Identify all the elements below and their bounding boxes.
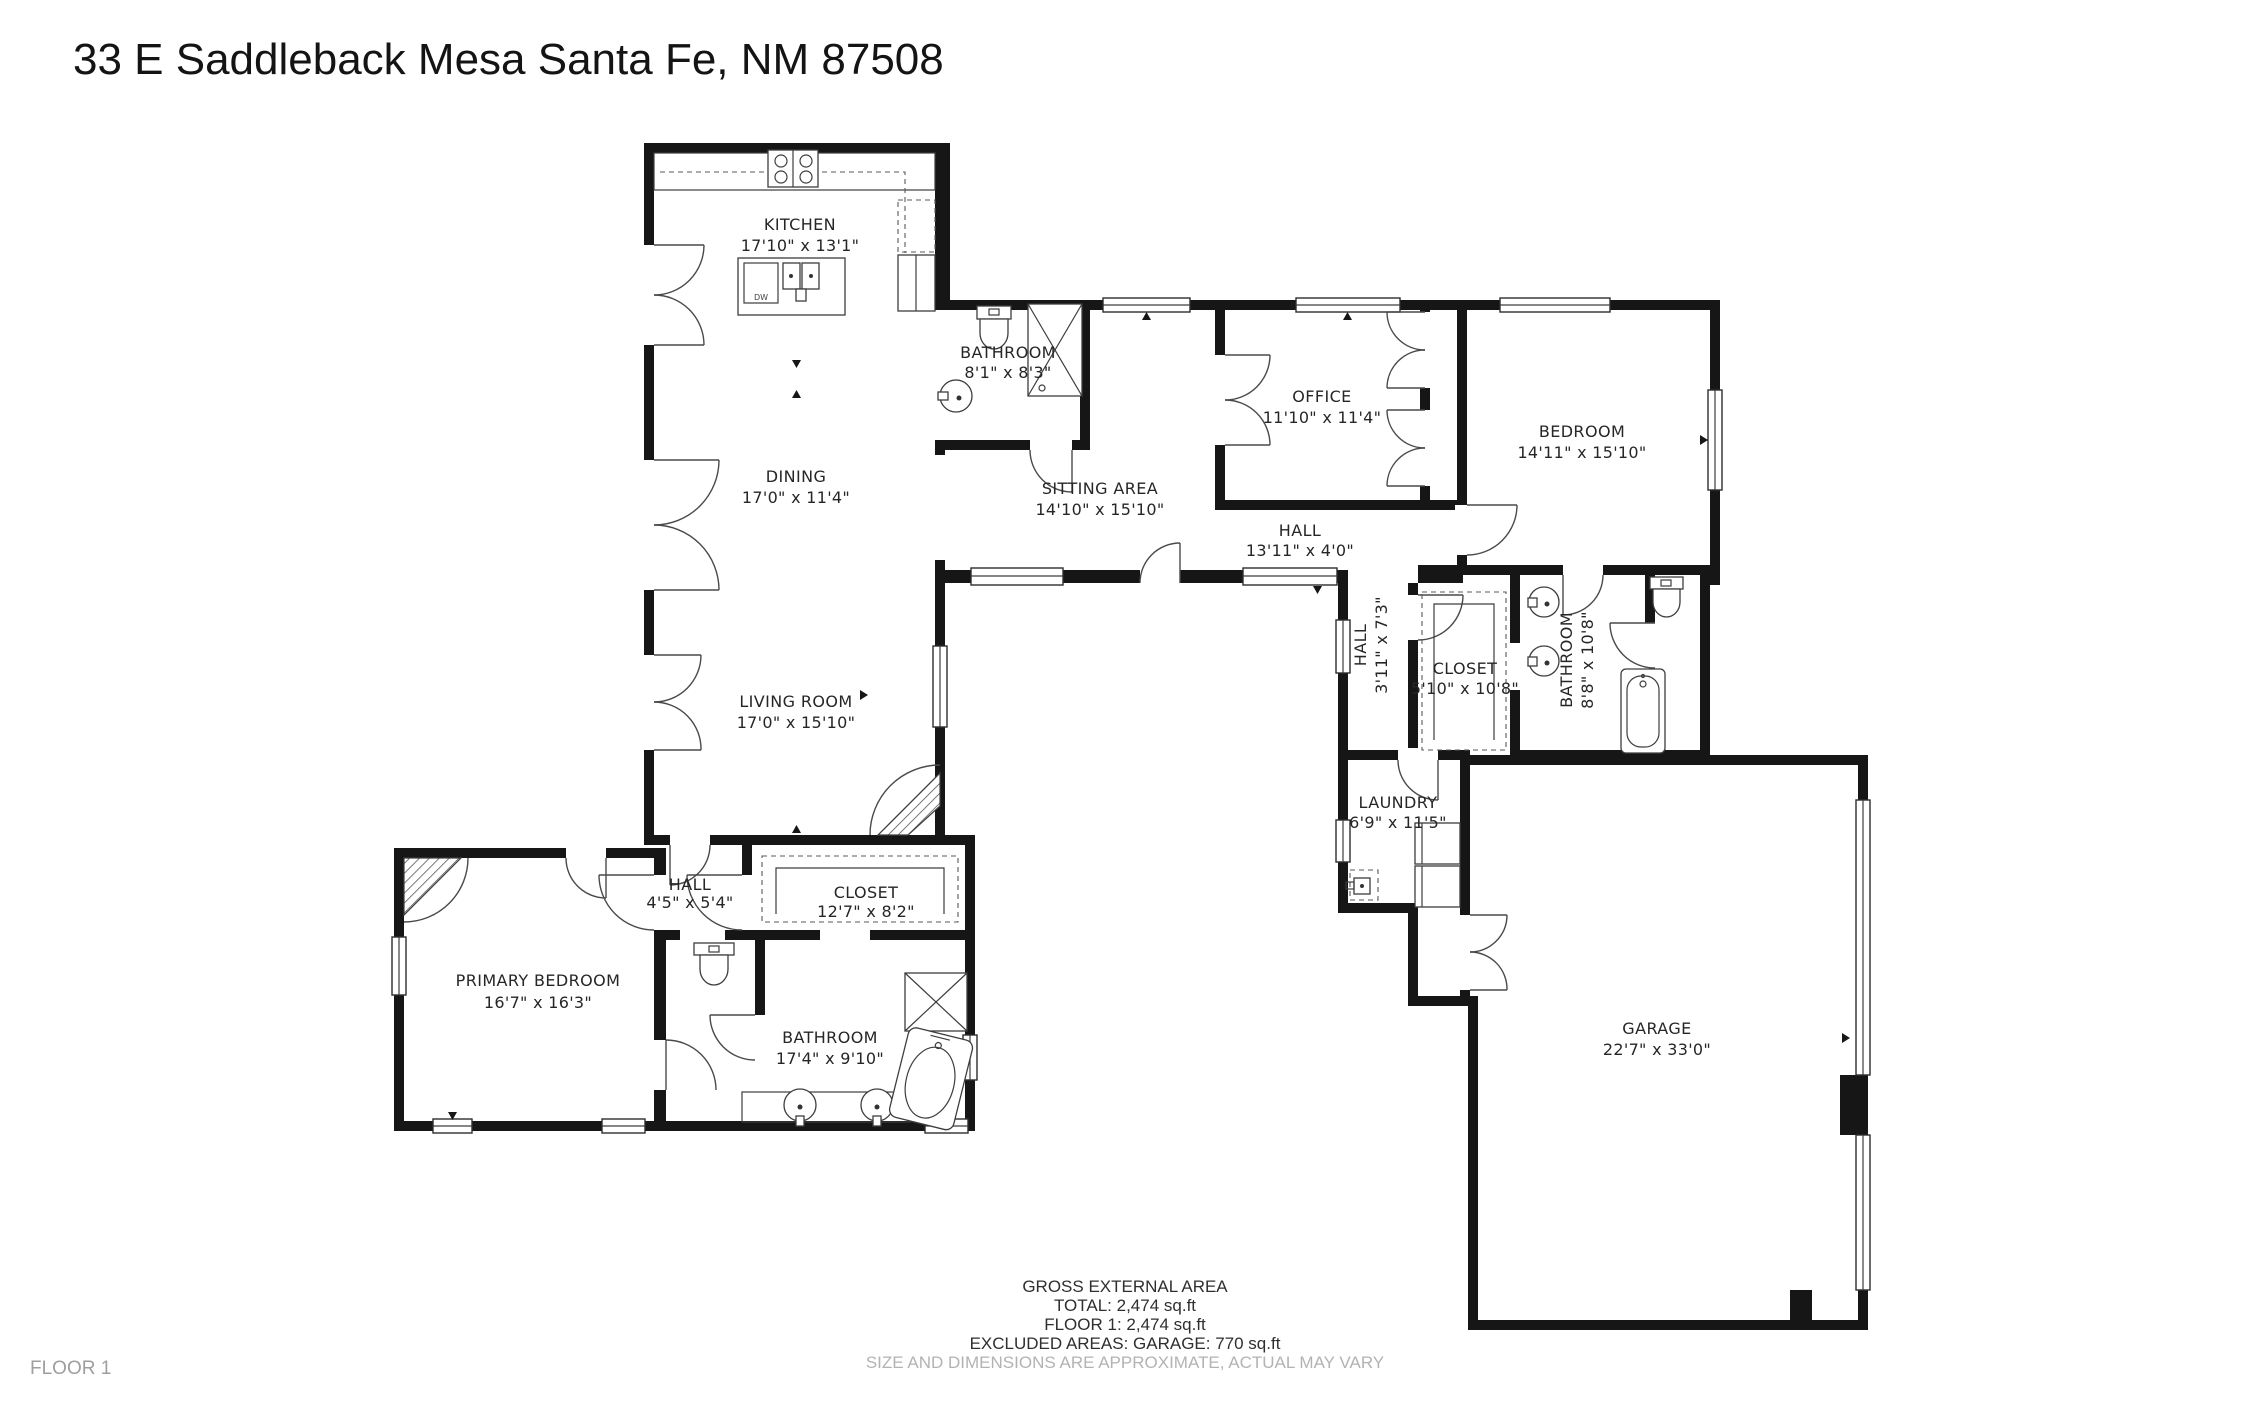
room-dims-bedroom: 14'11" x 15'10" [1517, 443, 1646, 462]
window [1296, 298, 1400, 312]
room-dims-hall-primary: 4'5" x 5'4" [646, 893, 733, 912]
room-dims-sitting-area: 14'10" x 15'10" [1035, 500, 1164, 519]
room-dims-bathroom-primary: 17'4" x 9'10" [776, 1049, 884, 1068]
fireplace-icon [870, 765, 940, 835]
room-label-garage: GARAGE [1622, 1019, 1691, 1038]
summary-disclaimer: SIZE AND DIMENSIONS ARE APPROXIMATE, ACT… [866, 1353, 1384, 1372]
door [1610, 623, 1655, 668]
window [1336, 620, 1350, 673]
door [1140, 543, 1180, 585]
window [1708, 390, 1722, 490]
door [1563, 563, 1603, 615]
room-dims-closet-primary: 12'7" x 8'2" [817, 902, 915, 921]
room-label-closet-primary: CLOSET [834, 883, 899, 902]
window [933, 646, 947, 727]
room-dims-laundry: 6'9" x 11'5" [1349, 813, 1447, 832]
bathtub-icon [1621, 669, 1665, 753]
washer-dryer-icon [1346, 823, 1460, 907]
kitchen-island-icon: DW [738, 258, 845, 315]
floor-label: FLOOR 1 [30, 1358, 111, 1379]
sink-icon [938, 380, 972, 412]
double-door [1458, 915, 1507, 990]
room-label-bathroom-primary: BATHROOM [782, 1028, 878, 1047]
door [652, 1040, 716, 1090]
room-dims-office: 11'10" x 11'4" [1263, 408, 1382, 427]
summary-total: TOTAL: 2,474 sq.ft [1054, 1296, 1196, 1315]
room-label-living-room: LIVING ROOM [739, 692, 852, 711]
cased-opening [933, 455, 947, 560]
room-dims-primary-bedroom: 16'7" x 16'3" [484, 993, 592, 1012]
floorplan-page: DW [0, 0, 2245, 1402]
room-label-primary-bedroom: PRIMARY BEDROOM [456, 971, 621, 990]
room-label-hall-main: HALL [1279, 521, 1321, 540]
room-dims-bathroom-main: 8'1" x 8'3" [964, 363, 1051, 382]
room-label-bedroom: BEDROOM [1539, 422, 1625, 441]
closet-double-door [1387, 410, 1432, 486]
window [1243, 568, 1337, 585]
room-dims-hall-main: 13'11" x 4'0" [1246, 541, 1354, 560]
dishwasher-label: DW [754, 293, 768, 302]
window [1336, 820, 1350, 862]
double-door [640, 460, 719, 590]
room-label-hall-primary: HALL [669, 875, 711, 894]
window [602, 1119, 645, 1133]
fireplace-icon [404, 858, 468, 922]
window [392, 937, 406, 995]
windows [392, 298, 1870, 1290]
room-label-bathroom-bedroom: BATHROOM [1557, 612, 1576, 708]
area-summary: GROSS EXTERNAL AREA TOTAL: 2,474 sq.ft F… [866, 1277, 1384, 1372]
door [566, 846, 606, 898]
window [1103, 298, 1190, 312]
cased-opening [680, 928, 725, 942]
double-door [640, 245, 704, 345]
toilet-icon [694, 943, 734, 985]
summary-excluded: EXCLUDED AREAS: GARAGE: 770 sq.ft [970, 1334, 1281, 1353]
window [971, 568, 1063, 585]
room-label-bathroom-main: BATHROOM [960, 343, 1056, 362]
page-title: 33 E Saddleback Mesa Santa Fe, NM 87508 [73, 35, 944, 84]
cased-opening [820, 928, 870, 942]
bathtub-icon [888, 1026, 974, 1131]
room-dims-kitchen: 17'10" x 13'1" [741, 236, 860, 255]
door [1455, 505, 1517, 555]
room-dims-hall-small: 3'11" x 7'3" [1372, 596, 1391, 694]
door [710, 1015, 755, 1060]
summary-floor1: FLOOR 1: 2,474 sq.ft [1044, 1315, 1206, 1334]
sink-icon [1528, 587, 1559, 617]
summary-heading: GROSS EXTERNAL AREA [1022, 1277, 1228, 1296]
room-dims-living-room: 17'0" x 15'10" [737, 713, 856, 732]
room-dims-dining: 17'0" x 11'4" [742, 488, 850, 507]
room-dims-bathroom-bedroom: 8'8" x 10'8" [1578, 611, 1597, 709]
fridge-icon [898, 200, 935, 311]
double-door [1213, 355, 1270, 445]
garage-door [1856, 800, 1870, 1075]
room-dims-closet-bedroom: 5'10" x 10'8" [1411, 679, 1519, 698]
window [433, 1119, 472, 1133]
room-label-kitchen: KITCHEN [764, 215, 836, 234]
sink-icon [1528, 646, 1559, 676]
window [1500, 298, 1610, 312]
room-label-hall-small: HALL [1351, 624, 1370, 666]
closet-double-door [1387, 312, 1432, 388]
room-label-office: OFFICE [1292, 387, 1351, 406]
shower-icon [905, 973, 967, 1031]
double-door [640, 655, 701, 750]
vanity-icon [742, 1089, 910, 1126]
room-label-sitting-area: SITTING AREA [1042, 479, 1158, 498]
room-label-laundry: LAUNDRY [1359, 793, 1438, 812]
room-label-closet-bedroom: CLOSET [1433, 659, 1498, 678]
toilet-icon [1650, 577, 1683, 617]
floor-plan-canvas: DW [0, 0, 2245, 1402]
room-dims-garage: 22'7" x 33'0" [1603, 1040, 1711, 1059]
room-label-dining: DINING [766, 467, 827, 486]
garage-door [1856, 1135, 1870, 1290]
